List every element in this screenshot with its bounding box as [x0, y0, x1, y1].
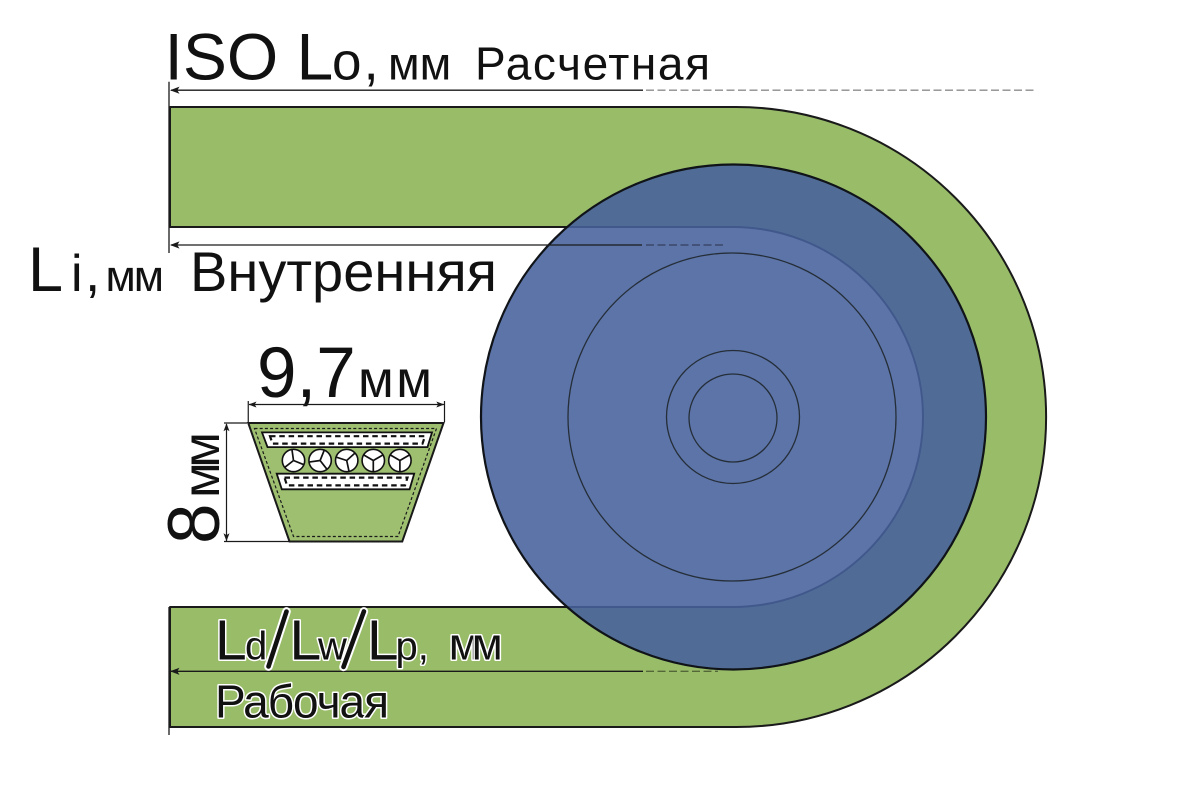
svg-text:L: L	[28, 235, 63, 305]
svg-text:d: d	[245, 625, 267, 669]
svg-text:o: o	[332, 33, 361, 92]
svg-text:Расчетная: Расчетная	[475, 38, 710, 90]
svg-text:i: i	[71, 245, 83, 303]
svg-text:L: L	[215, 609, 247, 673]
svg-text:Рабочая: Рабочая	[215, 676, 389, 728]
svg-text:ISO L: ISO L	[165, 20, 334, 94]
svg-text:мм: мм	[449, 619, 503, 670]
svg-text:L: L	[290, 609, 322, 673]
svg-text:мм: мм	[388, 38, 451, 90]
svg-text:9,7: 9,7	[257, 334, 356, 413]
svg-text:,: ,	[364, 30, 379, 92]
svg-text:,: ,	[85, 241, 100, 303]
svg-text:L: L	[367, 609, 399, 673]
svg-text:мм: мм	[173, 432, 231, 498]
svg-text:мм: мм	[106, 252, 165, 301]
svg-text:p,: p,	[396, 625, 429, 669]
svg-text:8: 8	[154, 503, 235, 544]
svg-text:Внутренняя: Внутренняя	[190, 240, 497, 303]
